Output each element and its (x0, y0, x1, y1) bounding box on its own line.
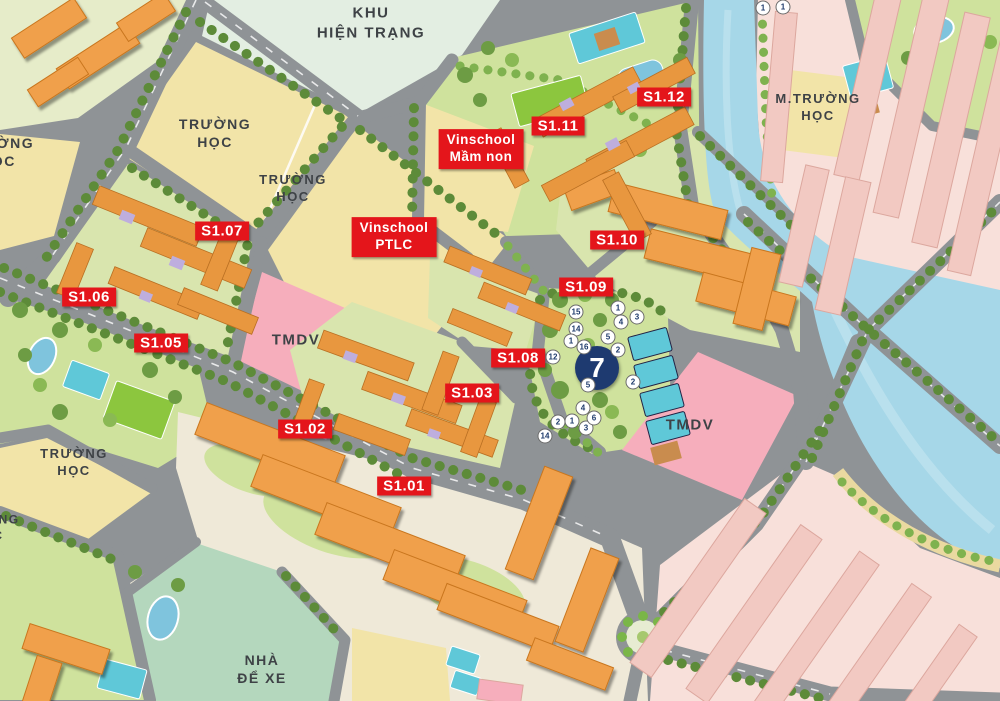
building-badge-s1-02: S1.02 (278, 420, 332, 439)
amenity-marker: 2 (626, 375, 641, 390)
amenity-marker: 1 (756, 1, 771, 16)
amenity-marker: 6 (587, 411, 602, 426)
region-label-khu-hien-trang: KHUHIỆN TRẠNG (317, 4, 425, 43)
region-label-truong-hoc-main: TRƯỜNGHỌC (179, 115, 251, 151)
region-label-truong-hoc-bottomleft-clipped: TRƯỜNGHỌC (0, 512, 20, 543)
amenity-marker: 16 (577, 340, 592, 355)
region-label-truong-hoc-southwest: TRƯỜNGHỌC (40, 446, 108, 480)
region-label-tmdv-east: TMDV (666, 415, 715, 435)
school-badge-vinschool-ptlc: VinschoolPTLC (352, 217, 437, 257)
amenity-marker: 15 (569, 305, 584, 320)
building-badge-s1-05: S1.05 (134, 334, 188, 353)
building-badge-s1-03: S1.03 (445, 384, 499, 403)
building-badge-s1-08: S1.08 (491, 349, 545, 368)
building-badge-s1-10: S1.10 (590, 231, 644, 250)
region-label-m-truong-hoc: M.TRƯỜNGHỌC (775, 91, 860, 125)
building-badge-s1-11: S1.11 (532, 117, 585, 136)
amenity-marker: 5 (601, 330, 616, 345)
amenity-marker: 1 (611, 301, 626, 316)
region-label-truong-hoc-left-clipped: TRƯỜNGHỌC (0, 134, 34, 170)
amenity-marker: 1 (776, 0, 791, 15)
region-label-truong-hoc-small: TRƯỜNGHỌC (259, 172, 327, 206)
amenity-marker: 5 (581, 378, 596, 393)
map-labels-layer: KHUHIỆN TRẠNGTRƯỜNGHỌCTRƯỜNGHỌCTRƯỜNGHỌC… (0, 0, 1000, 701)
amenity-marker: 2 (551, 415, 566, 430)
building-badge-s1-09: S1.09 (559, 278, 613, 297)
masterplan-map: KHUHIỆN TRẠNGTRƯỜNGHỌCTRƯỜNGHỌCTRƯỜNGHỌC… (0, 0, 1000, 701)
building-badge-s1-12: S1.12 (637, 88, 691, 107)
amenity-marker: 14 (538, 429, 553, 444)
building-badge-s1-06: S1.06 (62, 288, 116, 307)
school-badge-vinschool-mam-non: VinschoolMầm non (439, 129, 524, 169)
region-label-nha-de-xe: NHÀĐỂ XE (237, 651, 287, 687)
building-badge-s1-07: S1.07 (195, 222, 249, 241)
building-badge-s1-01: S1.01 (377, 477, 431, 496)
amenity-marker: 12 (546, 350, 561, 365)
amenity-marker: 3 (630, 310, 645, 325)
amenity-marker: 4 (614, 315, 629, 330)
region-label-tmdv-west: TMDV (272, 330, 321, 350)
amenity-marker: 2 (611, 343, 626, 358)
amenity-marker: 1 (565, 414, 580, 429)
